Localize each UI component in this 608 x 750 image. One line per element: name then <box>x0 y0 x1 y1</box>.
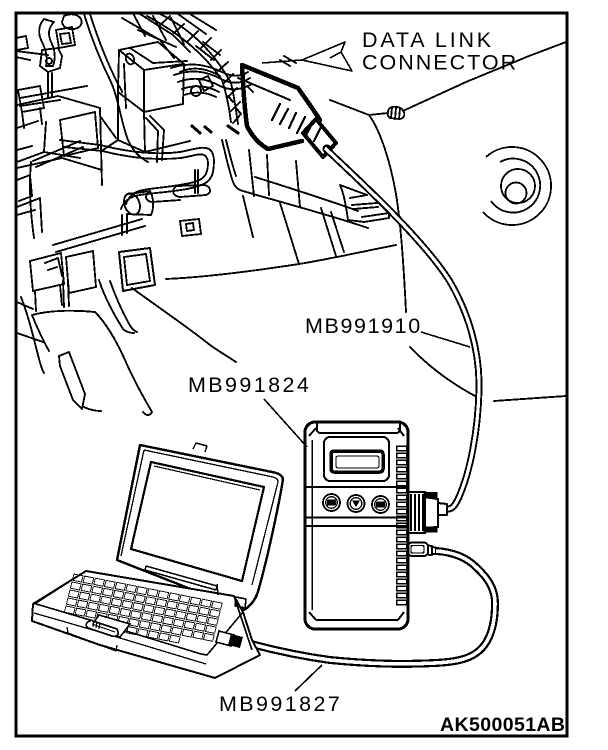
svg-text:CONNECTOR: CONNECTOR <box>362 51 518 75</box>
svg-text:AK500051AB: AK500051AB <box>440 714 565 736</box>
svg-text:MB991827: MB991827 <box>219 692 342 716</box>
svg-text:MB991910: MB991910 <box>305 314 422 338</box>
svg-text:MB991824: MB991824 <box>188 373 311 397</box>
svg-text:DATA LINK: DATA LINK <box>362 28 494 52</box>
